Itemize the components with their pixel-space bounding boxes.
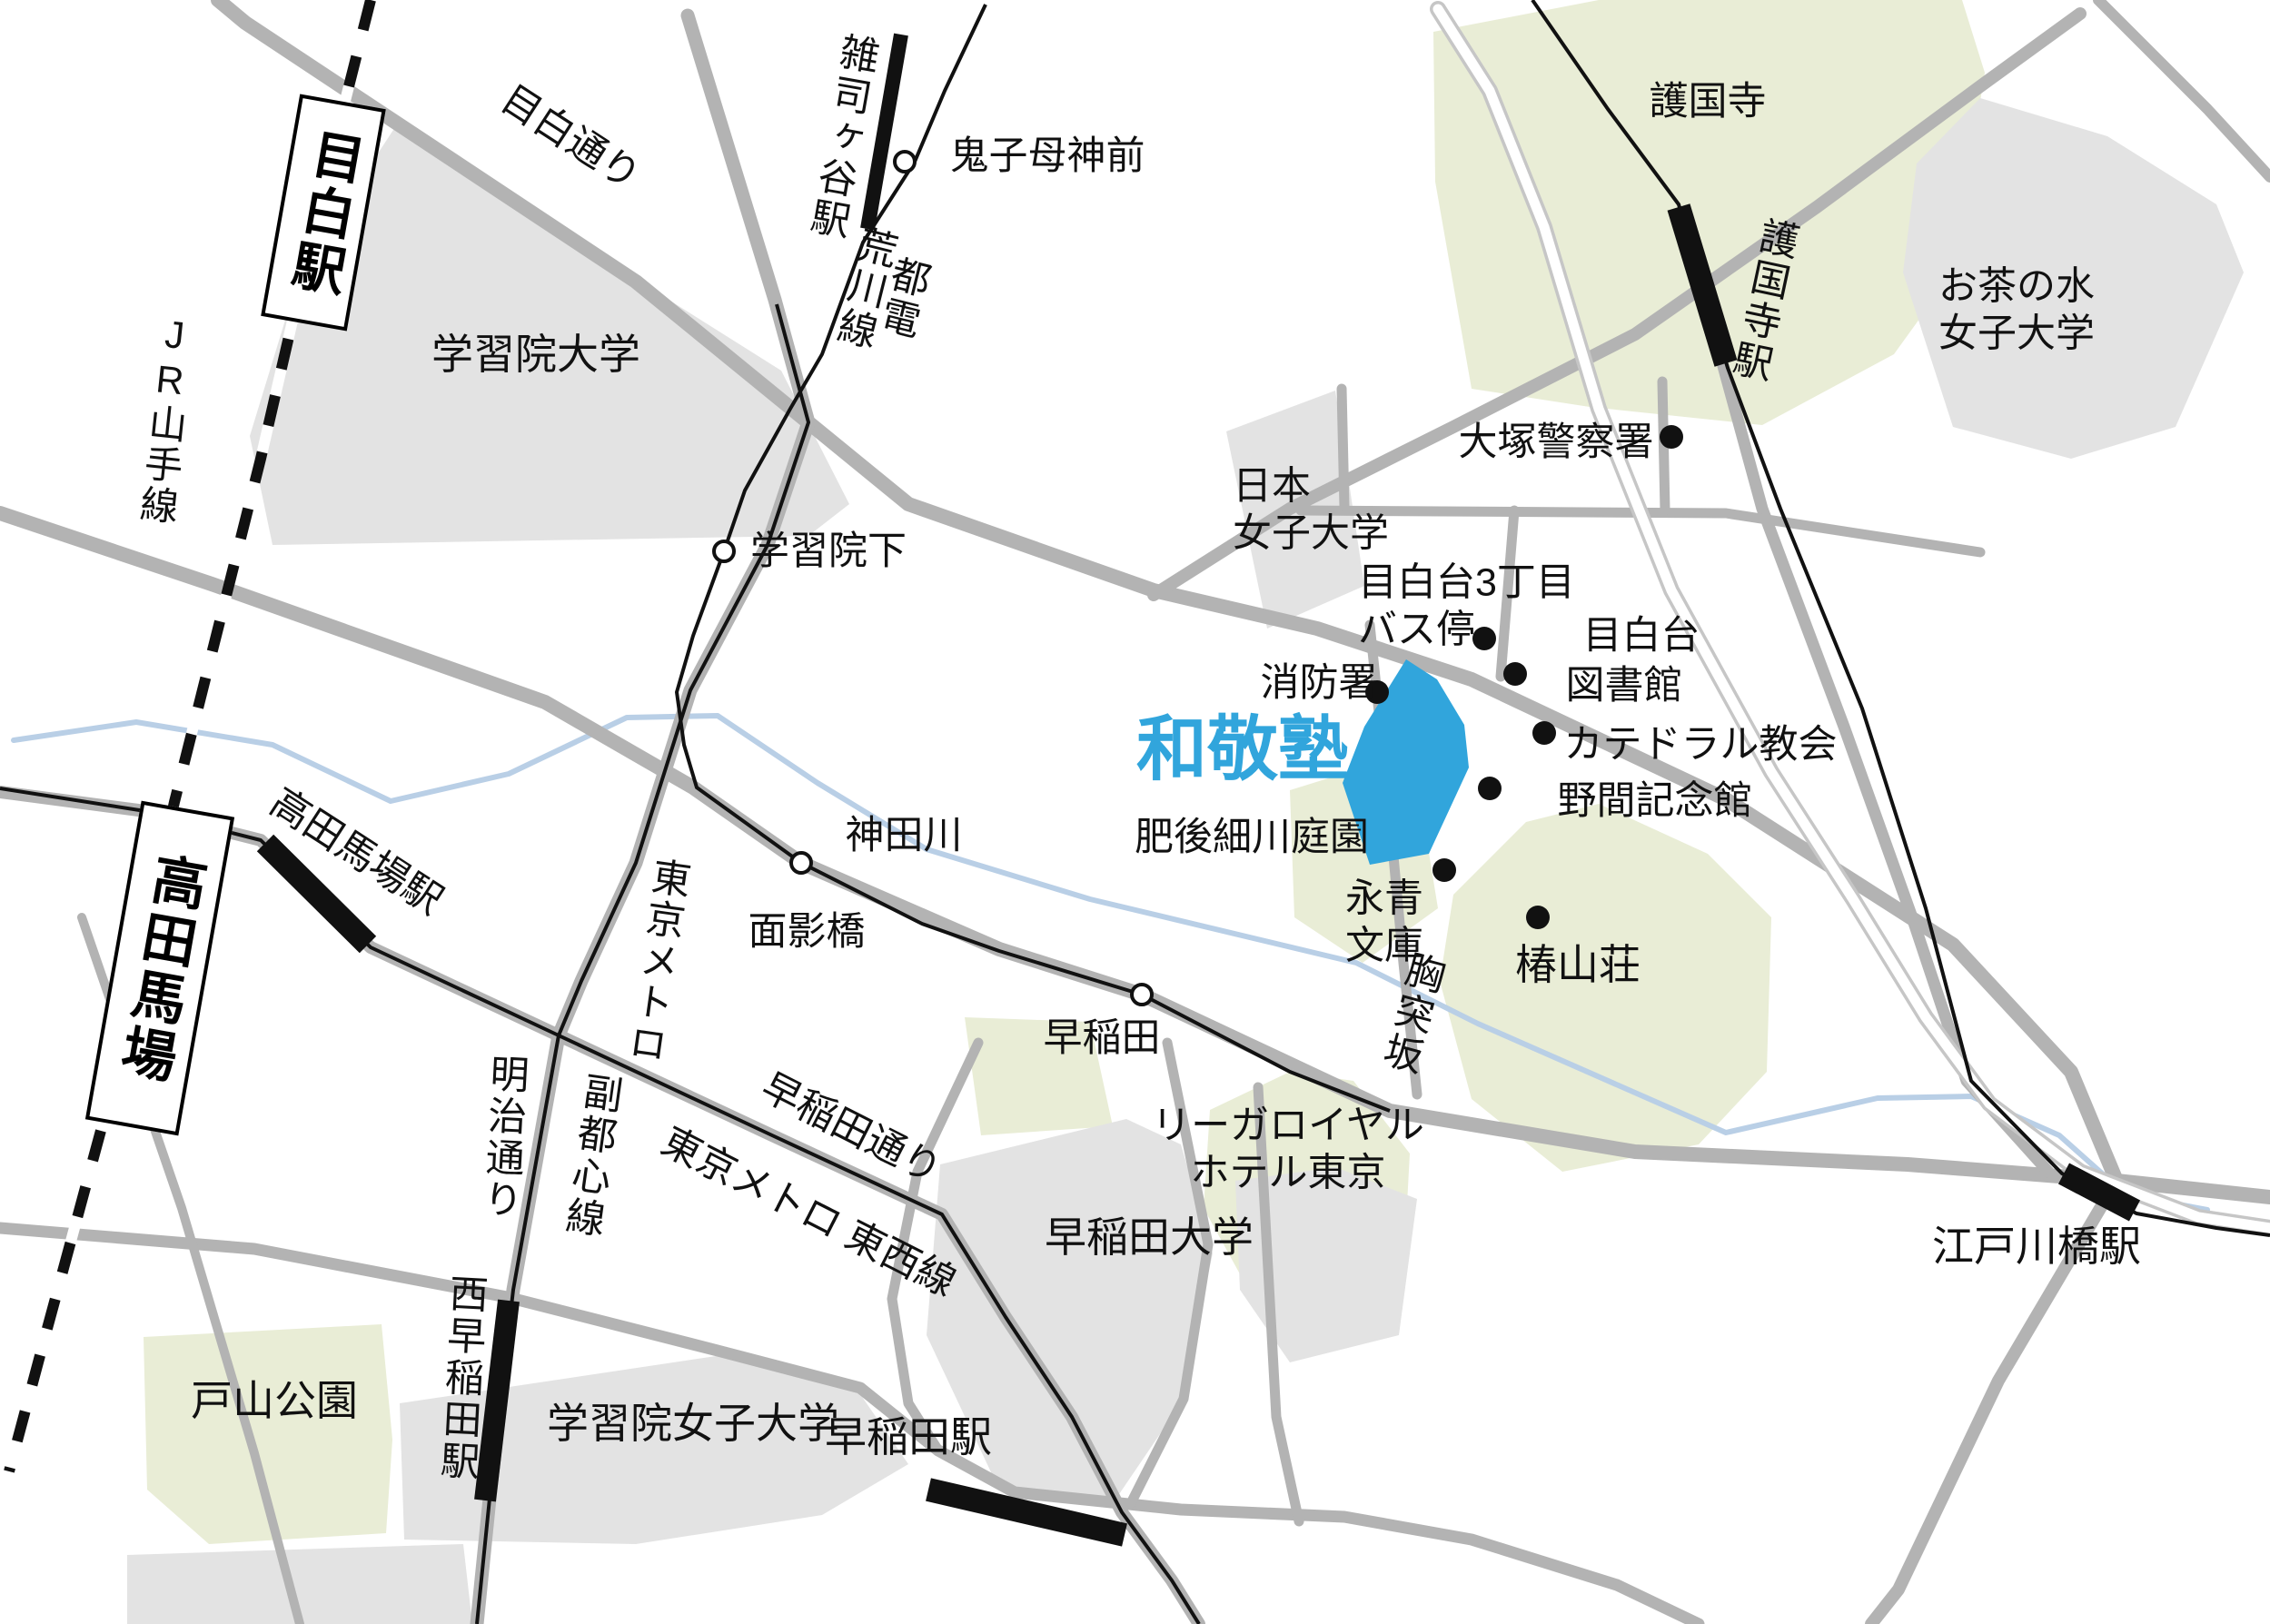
nihon-joshi-univ-label: 日本 女子大学 [1233,463,1389,559]
omokagebashi-stop-icon [791,853,811,873]
chinzanso-label: 椿山荘 [1515,939,1641,990]
gakushuin-womens-label: 学習院女子大学 [547,1398,839,1449]
kandagawa-label: 神田川 [846,812,963,859]
gokokuji-area [1433,0,1985,425]
meiji-dori-label: 明治通り [479,1053,527,1222]
eisei-bunko-dot-icon [1432,858,1456,882]
otsuka-police-label: 大塚警察署 [1459,419,1654,466]
tokyo-area-map: 目白駅 高田馬場 目白通りJR山手線雑司ヶ谷駅鬼子母神前都電 荒川線護国寺護国寺… [0,0,2270,1624]
kishibojinmae-stop-icon [895,152,915,172]
tram-stops [714,152,1152,1005]
waseda-stop-icon [1132,985,1152,1005]
waseda-univ-label: 早稲田大学 [1045,1212,1254,1263]
otsuka-police-dot-icon [1660,425,1683,449]
cathedral-label: カテドラル教会 [1564,721,1838,768]
higo-hosokawa-label: 肥後細川庭園 [1135,814,1369,861]
noma-kinenkan-label: 野間記念館 [1558,777,1753,825]
gokokuji-label: 護国寺 [1650,78,1767,125]
omokagebashi-label: 面影橋 [748,908,866,956]
toshokan-label: 図書館 [1566,662,1683,709]
chinzanso-dot-icon [1526,906,1550,929]
rihga-royal-label: リーガロイヤル ホテル東京 [1152,1103,1424,1198]
mejirodai-library-dot-icon [1503,662,1527,686]
nishi-waseda-station-label: 西早稲田駅 [436,1272,486,1483]
waseda-station-label: 早稲田駅 [825,1411,992,1462]
edogawabashi-station-label: 江戸川橋駅 [1932,1221,2141,1272]
noma-kinenkan-dot-icon [1478,777,1502,800]
mejirodai3-busstop-label: 目白台3丁目 バス停 [1358,559,1575,655]
shobosho-label: 消防署 [1261,659,1378,707]
toyama-park-label: 戸山公園 [191,1375,358,1426]
kishibojinmae-label: 鬼子母神前 [950,133,1145,180]
waseda-stop-label: 早稲田 [1044,1015,1161,1062]
mejirodai-label: 目白台 [1583,612,1700,659]
gakushuin-univ-label: 学習院大学 [431,329,640,380]
gakushuin-shita-label: 学習院下 [750,528,907,575]
gakushuin-shita-stop-icon [714,541,734,561]
wakeijuku-label: 和敬塾 [1136,706,1349,792]
ochanomizu-univ-label: お茶の水 女子大学 [1938,263,2095,359]
cathedral-dot-icon [1532,721,1556,745]
